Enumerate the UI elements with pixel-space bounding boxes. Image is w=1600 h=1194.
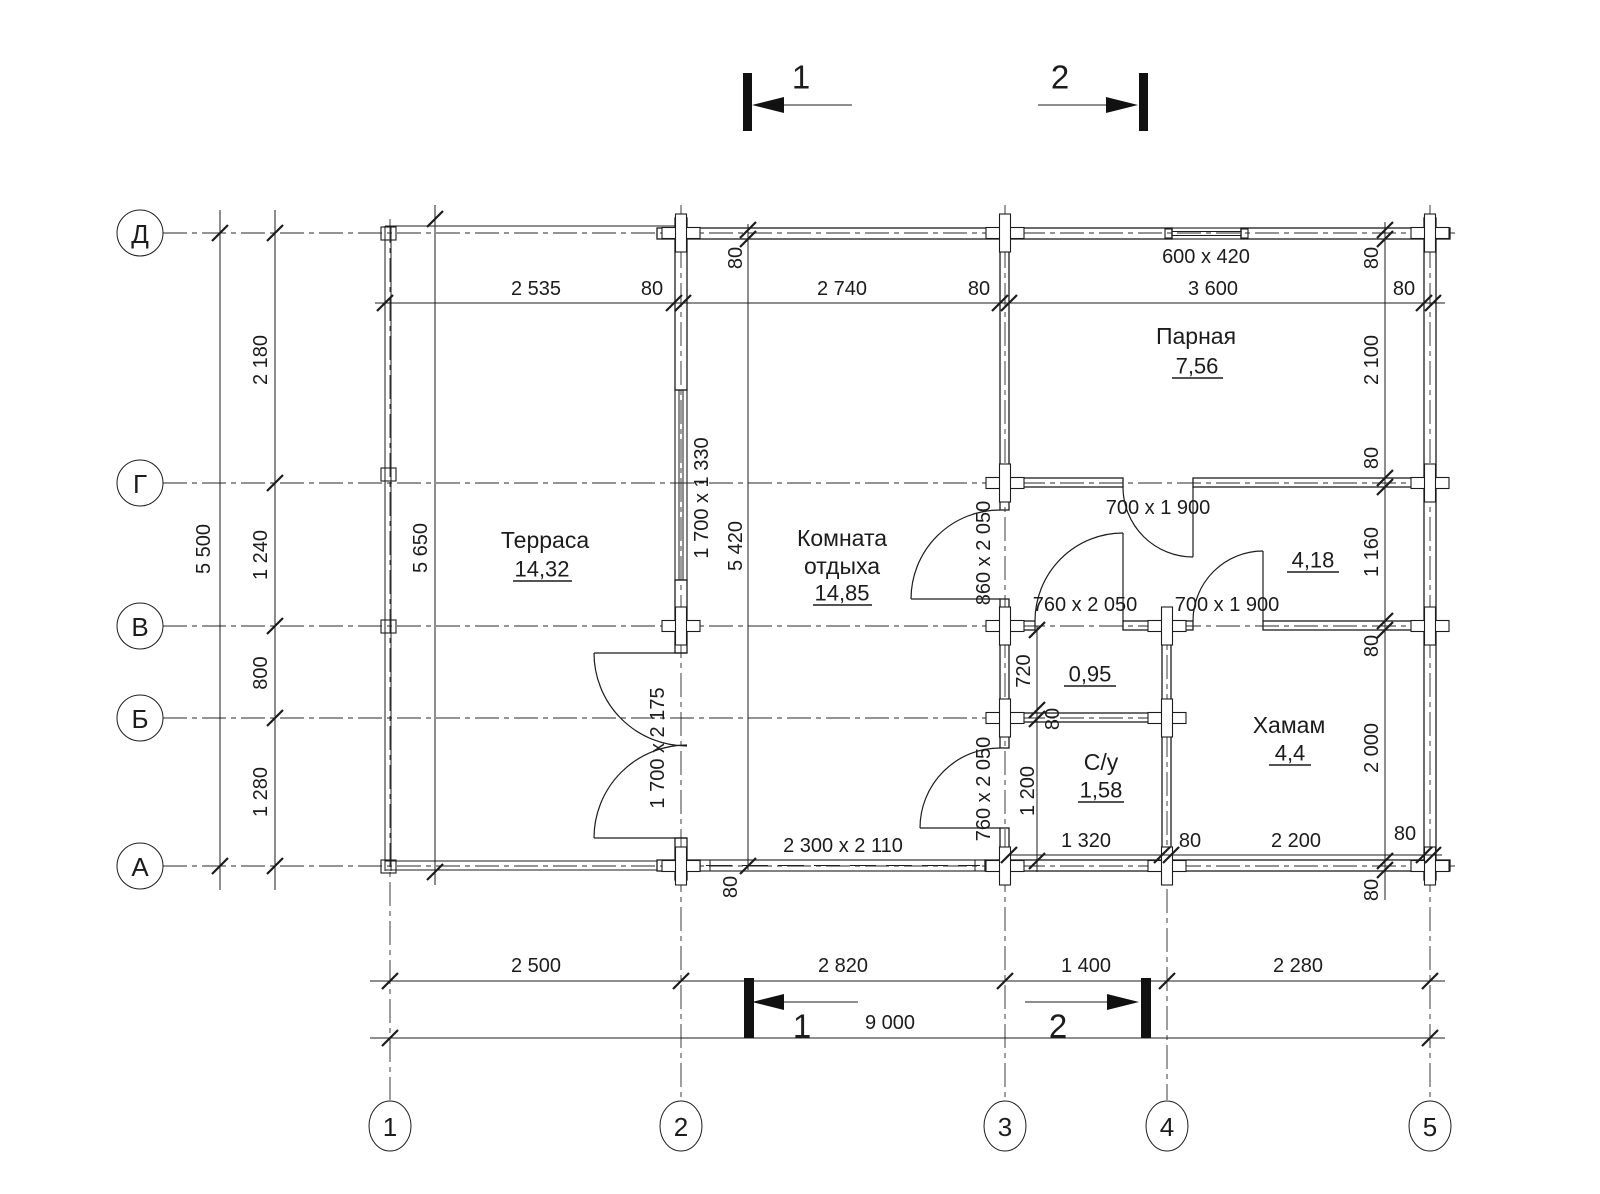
terrace-double-door <box>594 653 687 838</box>
dimension-lines <box>220 205 1445 1038</box>
wall-top-left <box>657 228 1172 239</box>
room-area-steam: 7,56 <box>1176 354 1219 379</box>
dim-bottom: 2 820 <box>818 955 868 977</box>
dim-right: 80 <box>1361 635 1383 657</box>
top-window <box>1165 228 1248 239</box>
dim-left: 1 240 <box>250 530 272 580</box>
room-area-lounge: 14,85 <box>814 581 869 606</box>
room-area-hall: 4,18 <box>1292 548 1335 573</box>
dim-top: 2 740 <box>817 278 867 300</box>
dim-right: 2 000 <box>1361 723 1383 773</box>
axis-col-label: 1 <box>383 1112 397 1142</box>
dim-top: 80 <box>641 278 663 300</box>
room-area-terrace: 14,32 <box>514 557 569 582</box>
dim-wc-chain: 80 <box>1042 708 1064 730</box>
room-name-steam: Парная <box>1156 323 1236 349</box>
dim-wc-chain: 1 200 <box>1017 766 1039 816</box>
wall-steam-right <box>1193 478 1436 487</box>
section-arrow-right-icon <box>1107 994 1139 1010</box>
label-patio-door: 2 300 x 2 110 <box>783 835 903 857</box>
dim-bottom: 2 500 <box>511 955 561 977</box>
section-flag-2-bottom: 2 <box>1025 978 1151 1045</box>
dim-bottom-inner: 80 <box>1179 830 1201 852</box>
dim-right: 1 160 <box>1361 527 1383 577</box>
dim-bottom-inner: 2 200 <box>1271 830 1321 852</box>
section-arrow-right-icon <box>1106 97 1138 113</box>
room-area-wc: 1,58 <box>1080 778 1123 803</box>
axis-row-label: В <box>131 612 148 642</box>
label-hall-door: 860 x 2 050 <box>973 501 995 606</box>
section-label: 1 <box>793 1008 811 1045</box>
dim-right: 2 100 <box>1361 335 1383 385</box>
dim-top: 2 535 <box>511 278 561 300</box>
dim-bottom: 1 400 <box>1061 955 1111 977</box>
label-wc-door: 760 x 2 050 <box>973 737 995 842</box>
axis-grid <box>163 205 1455 1100</box>
terrace-post <box>381 468 396 481</box>
terrace-posts <box>381 227 396 873</box>
axis-col-label: 5 <box>1423 1112 1437 1142</box>
terrace-post <box>381 860 396 873</box>
section-label: 1 <box>792 59 810 96</box>
section-label: 2 <box>1051 59 1069 96</box>
floor-plan-page: 1 2 1 2 Д Г В Б А 1 2 3 4 5 <box>0 0 1600 1194</box>
room-area-cell: 0,95 <box>1069 662 1112 687</box>
dim-right: 80 <box>1361 447 1383 469</box>
dim-right: 80 <box>1361 247 1383 269</box>
dim-top: 80 <box>1393 278 1415 300</box>
room-name-hammam: Хамам <box>1253 712 1326 738</box>
label-hammam-door: 700 x 1 900 <box>1175 594 1280 616</box>
wall-axis4 <box>1162 622 1171 871</box>
dim-wall-80: 80 <box>725 247 747 269</box>
label-small-door: 760 x 2 050 <box>1033 594 1138 616</box>
room-area-hammam: 4,4 <box>1275 741 1306 766</box>
section-flag-2-top: 2 <box>1038 59 1148 132</box>
room-labels: Терраса 14,32 Комната отдыха 14,85 Парна… <box>501 323 1339 803</box>
label-left-window: 1 700 x 1 330 <box>691 437 713 558</box>
room-name-wc: С/у <box>1084 749 1119 775</box>
axis-row-label: А <box>131 852 149 882</box>
dim-top: 80 <box>968 278 990 300</box>
dim-terrace-depth: 5 650 <box>410 523 432 573</box>
dim-bottom-inner: 1 320 <box>1061 830 1111 852</box>
dim-left: 800 <box>250 656 272 689</box>
floor-plan-canvas: 1 2 1 2 Д Г В Б А 1 2 3 4 5 <box>0 0 1600 1194</box>
label-top-window: 600 x 420 <box>1162 246 1250 268</box>
room-name-lounge: Комната <box>797 525 887 551</box>
section-label: 2 <box>1049 1008 1067 1045</box>
axis-row-label: Д <box>131 219 149 249</box>
section-arrow-left-icon <box>752 97 784 113</box>
dim-left: 1 280 <box>250 767 272 817</box>
dim-lounge-depth: 5 420 <box>725 521 747 571</box>
dim-top: 3 600 <box>1188 278 1238 300</box>
section-flag-1-top: 1 <box>743 59 852 132</box>
dim-bottom-inner: 80 <box>1394 823 1416 845</box>
dim-left: 2 180 <box>250 335 272 385</box>
terrace-post <box>381 620 396 633</box>
axis-row-label: Г <box>133 469 147 499</box>
axis-col-label: 3 <box>998 1112 1012 1142</box>
dimension-texts: 2 535 80 2 740 80 3 600 80 5 500 2 180 1… <box>193 247 1416 1034</box>
axis-col-label: 4 <box>1160 1112 1174 1142</box>
dim-right: 80 <box>1361 879 1383 901</box>
axis-row-label: Б <box>131 704 148 734</box>
section-flag-1-bottom: 1 <box>744 978 858 1045</box>
section-markers: 1 2 1 2 <box>743 59 1151 1045</box>
dim-wall-80: 80 <box>720 876 742 898</box>
dim-wc-chain: 720 <box>1013 654 1035 687</box>
dim-bottom-total: 9 000 <box>865 1012 915 1034</box>
label-terrace-door: 1 700 x 2 175 <box>647 687 669 808</box>
axis-col-label: 2 <box>674 1112 688 1142</box>
terrace-post <box>381 227 396 240</box>
room-name-lounge: отдыха <box>804 553 880 579</box>
section-arrow-left-icon <box>752 994 784 1010</box>
patio-glazed-door <box>700 860 985 871</box>
room-name-terrace: Терраса <box>501 527 589 553</box>
label-steam-door: 700 x 1 900 <box>1106 497 1211 519</box>
dim-bottom: 2 280 <box>1273 955 1323 977</box>
dim-left-total: 5 500 <box>193 524 215 574</box>
wall-hall-3 <box>1263 621 1436 630</box>
